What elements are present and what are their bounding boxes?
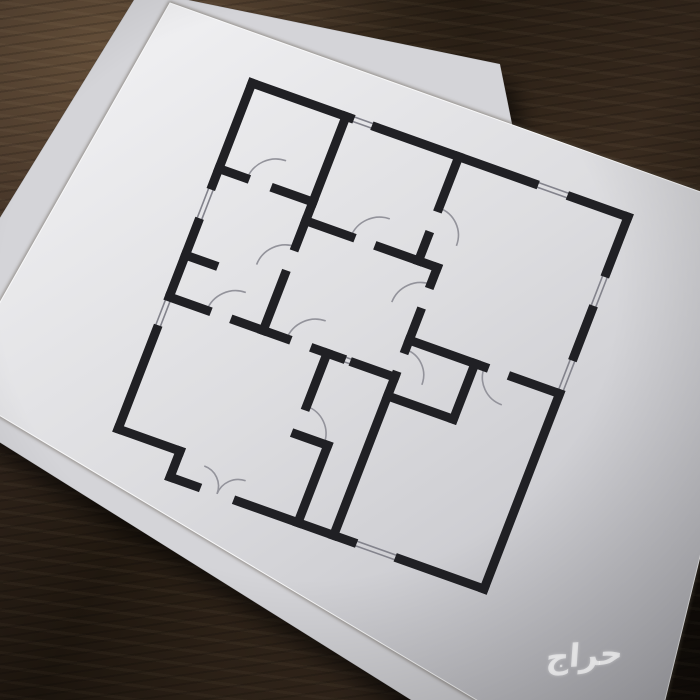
wall-segment xyxy=(431,268,437,285)
haraj-watermark: حراج xyxy=(545,633,624,677)
photo-scene: حراج xyxy=(0,0,700,700)
paper-and-floor-plan xyxy=(0,0,700,700)
